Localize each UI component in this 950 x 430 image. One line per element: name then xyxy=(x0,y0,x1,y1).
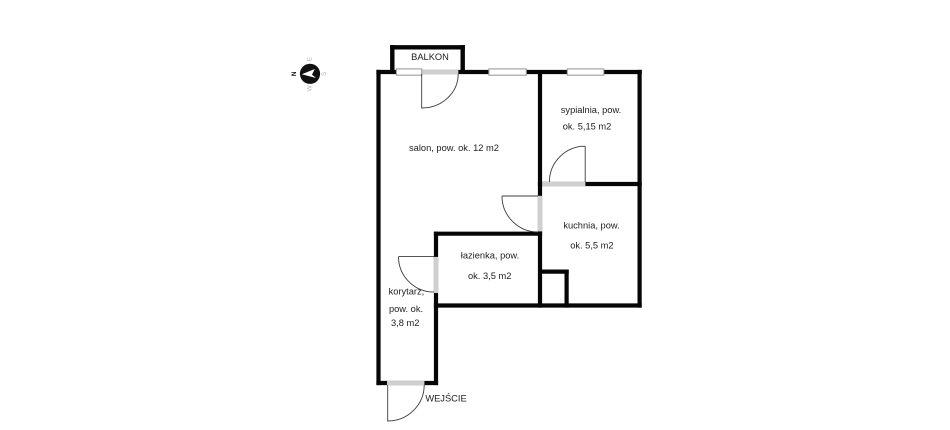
svg-text:pow. ok.: pow. ok. xyxy=(389,304,423,314)
svg-text:S: S xyxy=(321,72,328,76)
svg-text:ok. 5,15 m2: ok. 5,15 m2 xyxy=(563,122,612,132)
svg-text:WEJŚCIE: WEJŚCIE xyxy=(425,392,466,403)
svg-text:W: W xyxy=(306,84,313,91)
svg-text:korytarz,: korytarz, xyxy=(389,286,425,296)
svg-text:łazienka, pow.: łazienka, pow. xyxy=(461,251,519,261)
svg-text:sypialnia, pow.: sypialnia, pow. xyxy=(561,105,621,115)
svg-text:kuchnia, pow.: kuchnia, pow. xyxy=(563,221,619,231)
svg-text:BALKON: BALKON xyxy=(411,52,449,62)
svg-text:3,8 m2: 3,8 m2 xyxy=(391,318,419,328)
svg-text:N: N xyxy=(291,71,298,76)
svg-text:E: E xyxy=(306,57,313,61)
svg-text:salon, pow. ok. 12 m2: salon, pow. ok. 12 m2 xyxy=(409,143,499,153)
svg-text:ok. 3,5 m2: ok. 3,5 m2 xyxy=(468,271,511,281)
svg-text:ok. 5,5 m2: ok. 5,5 m2 xyxy=(570,240,613,250)
